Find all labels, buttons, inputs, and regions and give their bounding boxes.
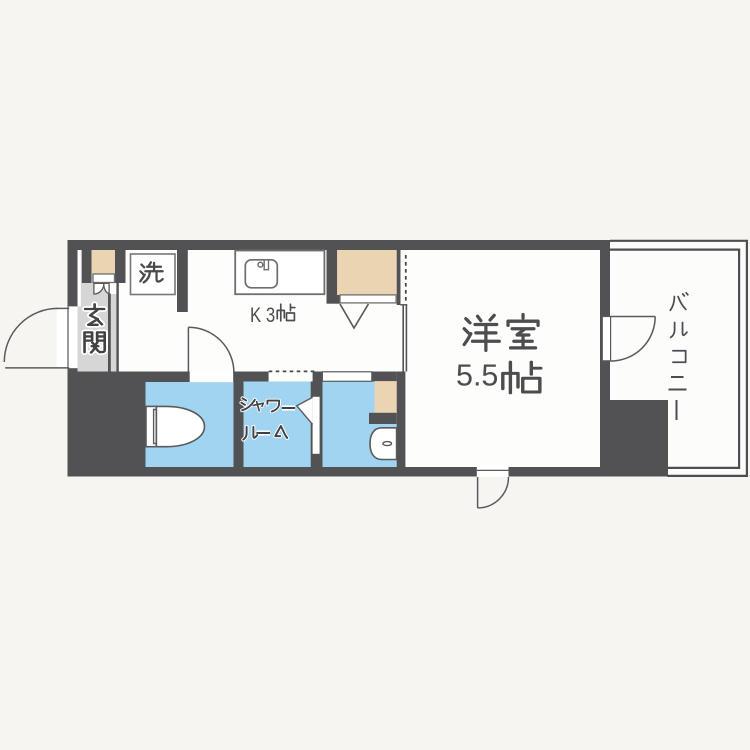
svg-text:5.5: 5.5 (456, 359, 498, 393)
svg-text:K 3: K 3 (250, 304, 275, 327)
